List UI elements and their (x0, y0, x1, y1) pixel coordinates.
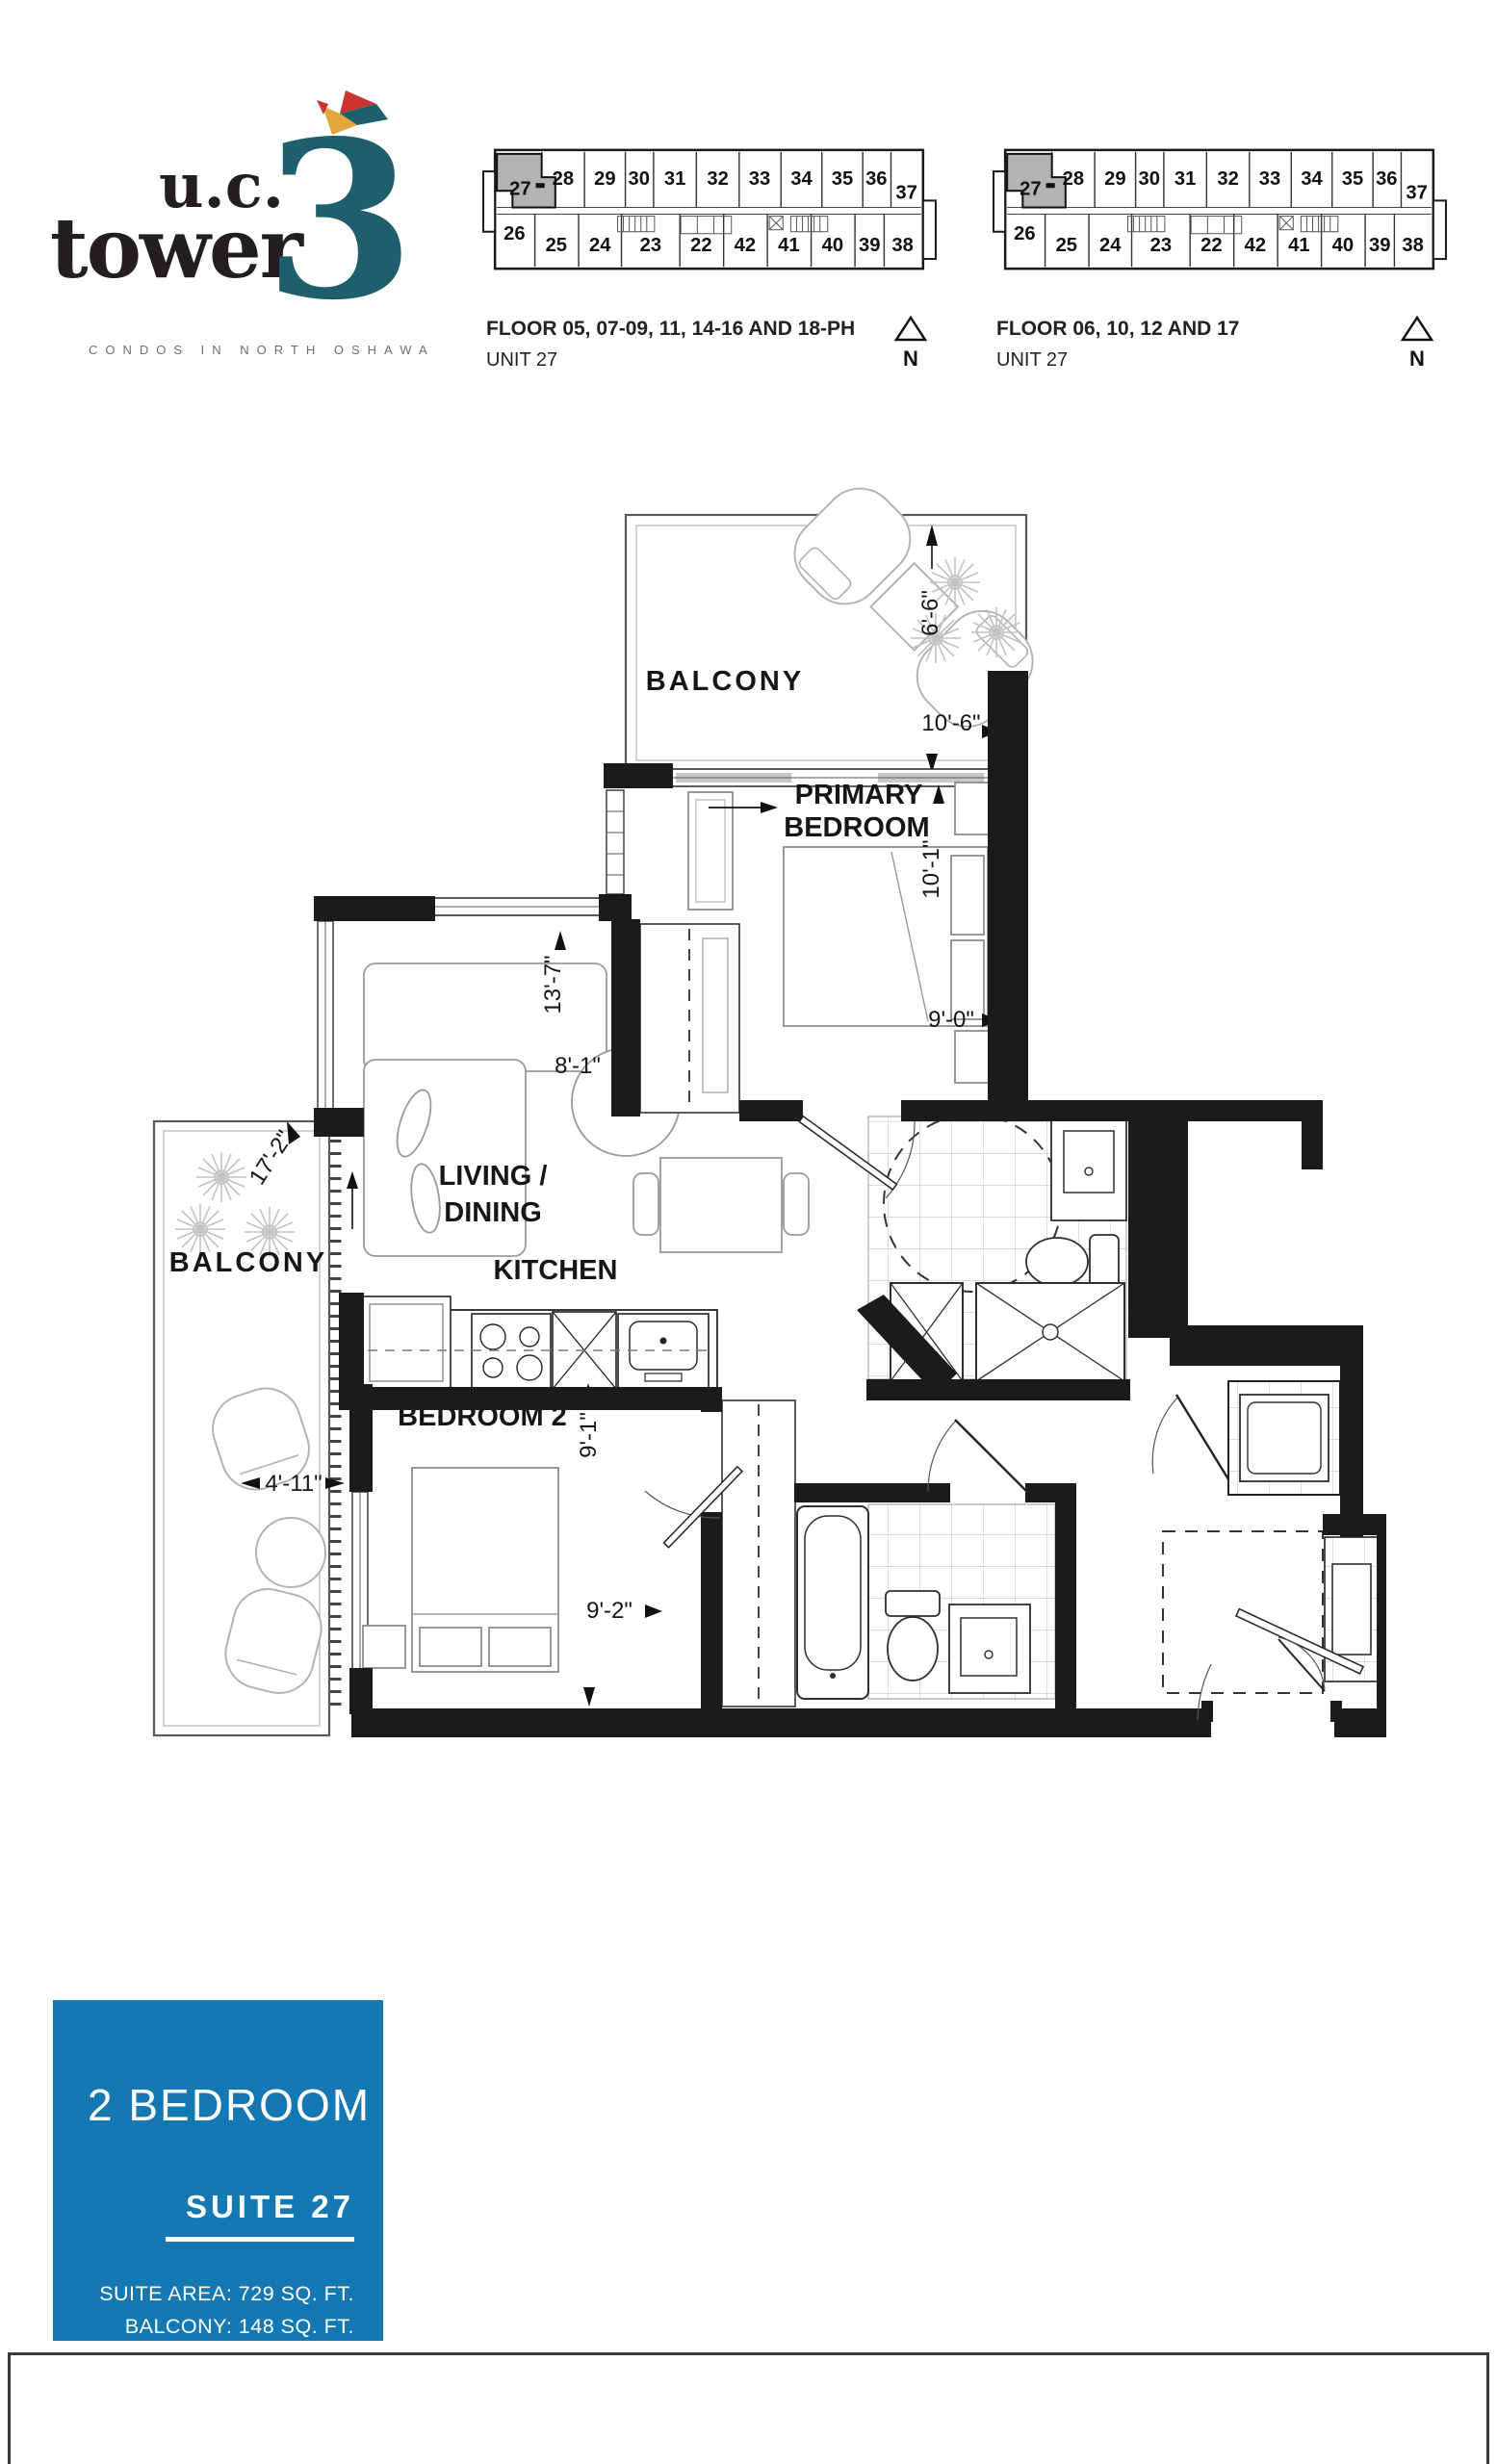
plant-icon (971, 607, 1021, 657)
dim-balcony-top-width: 10'-6" (921, 710, 980, 736)
keyplan-unit: 41 (1288, 235, 1309, 256)
keyplan-unit: 25 (546, 235, 567, 256)
keyplan-unit: 24 (589, 235, 611, 256)
keyplan-2-floors: FLOOR 06, 10, 12 AND 17 (996, 318, 1381, 341)
logo-number-3: 3 (264, 114, 415, 330)
keyplan-diagram: 27 28 29 30 31 32 33 34 35 36 37 26 25 2… (992, 114, 1449, 306)
room-label-balcony-left: BALCONY (169, 1247, 327, 1278)
washer-icon (1240, 1395, 1329, 1481)
north-label: N (1409, 346, 1425, 371)
room-label-balcony-top: BALCONY (646, 666, 804, 697)
keyplan-1-caption: FLOOR 05, 07-09, 11, 14-16 AND 18-PH UNI… (486, 318, 871, 372)
disclaimer-frame (8, 2352, 1489, 2464)
dim-living-width: 8'-1" (555, 1053, 601, 1079)
keyplan-unit: 29 (1104, 168, 1125, 190)
balcony-chair-icon (219, 1581, 328, 1700)
keyplan-unit: 33 (1259, 168, 1280, 190)
dim-bedroom2: 9'-2" (586, 1598, 632, 1624)
keyplan-unit: 30 (628, 168, 649, 190)
keyplan-1: 27 28 29 30 31 32 33 34 35 36 37 26 25 2… (481, 114, 939, 306)
dim-living-depth: 13'-7" (540, 955, 566, 1014)
north-arrow-icon: N (890, 314, 932, 372)
dim-balcony-left-width: 4'-11" (265, 1471, 322, 1497)
keyplan-unit: 32 (707, 168, 728, 190)
bath-sink-icon (1051, 1116, 1126, 1220)
brand-logo: u.c. tower 3 (87, 123, 409, 340)
dim-balcony-top-depth: 6'-6" (917, 590, 943, 636)
keyplan-unit: 24 (1099, 235, 1122, 256)
keyplan-2: 27 28 29 30 31 32 33 34 35 36 37 26 25 2… (992, 114, 1449, 306)
keyplan-2-caption: FLOOR 06, 10, 12 AND 17 UNIT 27 (996, 318, 1381, 372)
balcony-table-icon (256, 1518, 325, 1587)
bedroom2-closet (722, 1400, 795, 1707)
keyplan-unit: 26 (503, 223, 525, 244)
keyplan-unit: 42 (735, 235, 756, 256)
keyplan-unit: 27 (509, 178, 530, 199)
keyplan-unit: 38 (1402, 235, 1423, 256)
keyplan-unit: 30 (1138, 168, 1159, 190)
room-label-kitchen: KITCHEN (494, 1255, 618, 1286)
room-label-primary-1: PRIMARY (795, 780, 923, 810)
room-label-primary-2: BEDROOM (784, 812, 929, 843)
toilet-icon (886, 1591, 940, 1681)
keyplan-unit: 36 (865, 168, 887, 190)
keyplan-unit: 22 (690, 235, 711, 256)
suite-underline (166, 2237, 354, 2242)
keyplan-unit: 23 (640, 235, 661, 256)
suite-area-line2: BALCONY: 148 SQ. FT. (99, 2310, 354, 2343)
keyplan-1-unit: UNIT 27 (486, 349, 871, 372)
keyplan-unit: 29 (594, 168, 615, 190)
keyplan-unit: 25 (1056, 235, 1077, 256)
keyplan-unit: 35 (832, 168, 853, 190)
keyplan-unit: 32 (1217, 168, 1238, 190)
keyplan-unit: 28 (553, 168, 574, 190)
keyplan-unit: 39 (859, 235, 880, 256)
floorplan-page: u.c. tower 3 CONDOS IN NORTH OSHAWA (0, 0, 1497, 2464)
keyplan-unit: 40 (822, 235, 843, 256)
dim-primary-width: 9'-0" (928, 1007, 974, 1033)
suite-type-label: 2 BEDROOM (88, 2079, 371, 2131)
room-label-living-1: LIVING / (439, 1161, 548, 1192)
room-label-living-2: DINING (444, 1197, 542, 1228)
keyplan-unit: 41 (778, 235, 799, 256)
hummingbird-icon (317, 89, 388, 139)
keyplan-unit: 37 (895, 182, 916, 203)
keyplan-diagram: 27 28 29 30 31 32 33 34 35 36 37 26 25 2… (481, 114, 939, 306)
bedroom2: BEDROOM 2 9'-2" (363, 1401, 662, 1707)
keyplan-unit: 42 (1245, 235, 1266, 256)
suite-info-box: 2 BEDROOM SUITE 27 SUITE AREA: 729 SQ. F… (53, 2000, 383, 2341)
north-arrow-icon: N (1396, 314, 1438, 372)
suite-area-line1: SUITE AREA: 729 SQ. FT. (99, 2277, 354, 2310)
keyplan-unit: 40 (1332, 235, 1354, 256)
plant-icon (196, 1152, 246, 1202)
stove-icon (472, 1314, 551, 1389)
bath-sink-icon (949, 1604, 1030, 1693)
main-floorplan: BALCONY 6'-6" 10'-6" (125, 486, 1386, 1737)
logo-tagline: CONDOS IN NORTH OSHAWA (89, 343, 406, 357)
primary-closet (640, 924, 739, 1113)
suite-area-text: SUITE AREA: 729 SQ. FT. BALCONY: 148 SQ.… (99, 2277, 354, 2343)
keyplan-1-floors: FLOOR 05, 07-09, 11, 14-16 AND 18-PH (486, 318, 871, 341)
toilet-icon (1026, 1235, 1119, 1289)
keyplan-unit: 34 (790, 168, 813, 190)
keyplan-2-unit: UNIT 27 (996, 349, 1381, 372)
keyplan-unit: 35 (1342, 168, 1363, 190)
keyplan-unit: 31 (664, 168, 685, 190)
keyplan-unit: 34 (1301, 168, 1323, 190)
keyplan-unit: 28 (1063, 168, 1084, 190)
kitchen-sink-icon (618, 1314, 709, 1389)
keyplan-unit: 33 (749, 168, 770, 190)
keyplan-unit: 27 (1020, 178, 1041, 199)
keyplan-unit: 22 (1200, 235, 1222, 256)
linen-shelf (1332, 1564, 1371, 1655)
dim-primary-depth: 10'-1" (918, 839, 944, 898)
keyplan-unit: 37 (1406, 182, 1427, 203)
suite-number-label: SUITE 27 (186, 2189, 354, 2225)
dim-kitchen: 9'-1" (576, 1412, 602, 1458)
keyplan-unit: 23 (1150, 235, 1172, 256)
keyplan-unit: 31 (1174, 168, 1196, 190)
balcony-left: BALCONY 17'-2" 4'-11" (154, 1121, 358, 1735)
bathtub-icon (797, 1506, 868, 1699)
balcony-top: BALCONY 6'-6" 10'-6" (626, 486, 1047, 773)
north-label: N (903, 346, 918, 371)
keyplan-unit: 38 (891, 235, 913, 256)
keyplan-unit: 39 (1369, 235, 1390, 256)
keyplan-unit: 36 (1376, 168, 1397, 190)
keyplan-unit: 26 (1014, 223, 1035, 244)
